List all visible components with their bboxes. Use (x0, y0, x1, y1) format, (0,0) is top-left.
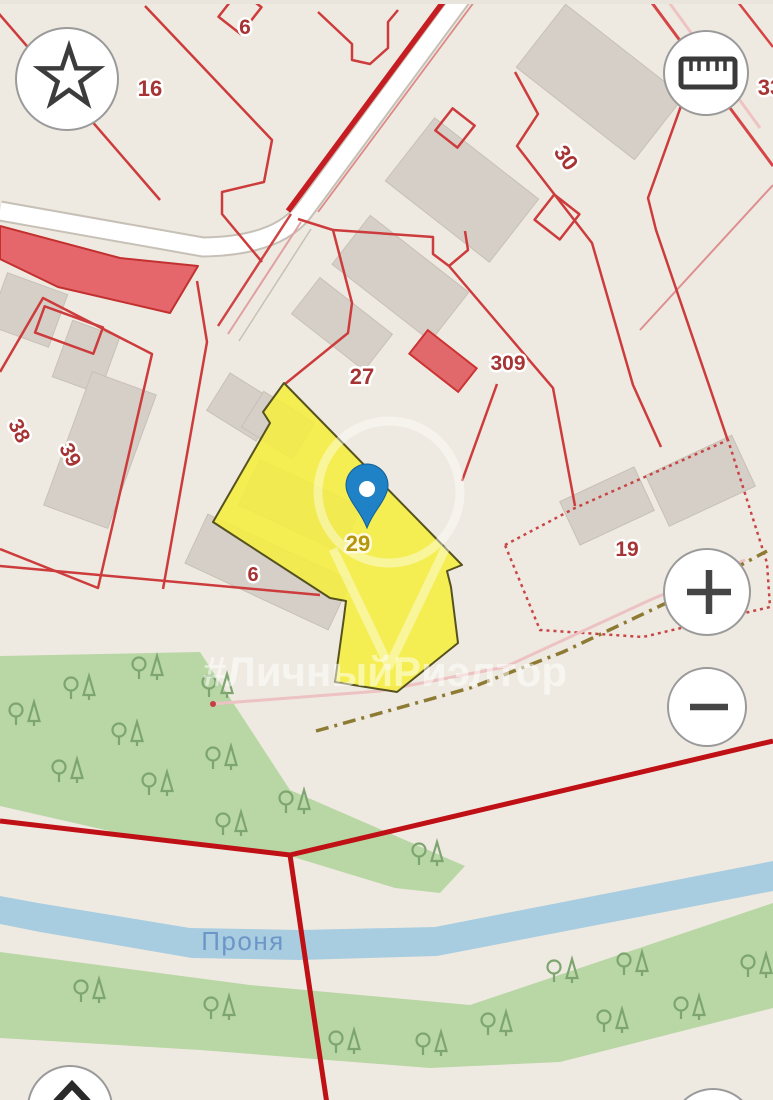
map-screen: #ЛичныйРиэлтор 6 16 30 27 309 38 39 6 19… (0, 0, 773, 1100)
minus-icon (669, 667, 745, 747)
river-label: Проня (201, 926, 285, 956)
selected-parcel-number: 29 (346, 531, 370, 556)
top-edge-divider (0, 0, 773, 4)
ruler-icon (665, 30, 747, 116)
cadastral-map[interactable]: #ЛичныйРиэлтор 6 16 30 27 309 38 39 6 19… (0, 0, 773, 1100)
watermark-text: #ЛичныйРиэлтор (203, 648, 567, 695)
favorites-button[interactable] (15, 27, 119, 131)
parcel-label-309: 309 (490, 352, 525, 375)
chevron-up-icon (29, 1065, 111, 1100)
parcel-label-19: 19 (615, 538, 638, 561)
measure-button[interactable] (663, 30, 749, 116)
pink-path-node (210, 701, 216, 707)
parcel-label-6-mid: 6 (247, 564, 258, 586)
star-icon (17, 27, 117, 131)
plus-icon (665, 548, 749, 636)
parcel-label-33-edge: 33 (758, 75, 773, 100)
parcel-label-16: 16 (138, 76, 162, 101)
zoom-in-button[interactable] (663, 548, 751, 636)
parcel-label-6-top: 6 (239, 16, 251, 39)
zoom-out-button[interactable] (667, 667, 747, 747)
expand-button[interactable] (27, 1065, 113, 1100)
parcel-label-27: 27 (350, 364, 374, 389)
